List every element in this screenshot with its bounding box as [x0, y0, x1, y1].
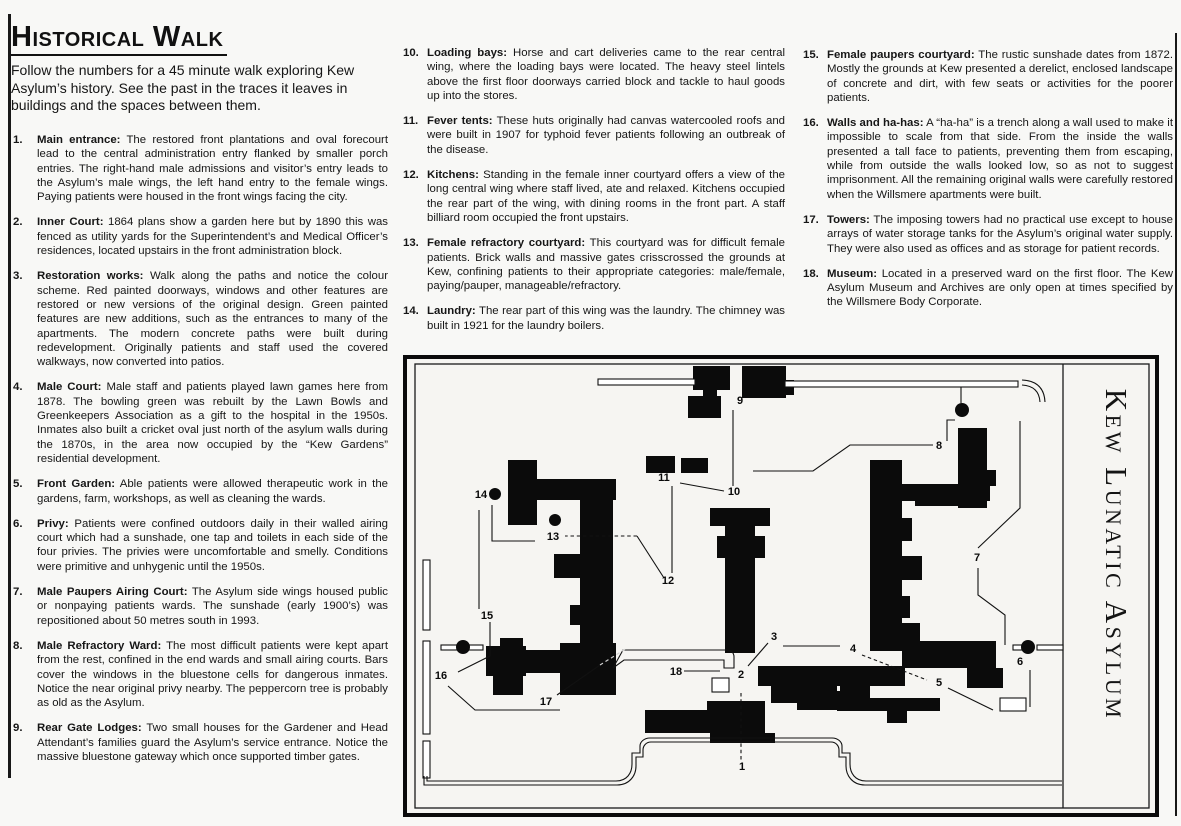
item-heading: Male Refractory Ward:	[37, 640, 161, 652]
item-number: 11.	[403, 114, 418, 128]
walk-items-column-3: 15.Female paupers courtyard: The rustic …	[801, 48, 1173, 321]
intro-paragraph: Follow the numbers for a 45 minute walk …	[11, 62, 389, 115]
walk-item-10: 10.Loading bays: Horse and cart deliveri…	[401, 46, 785, 103]
map-label-13: 13	[547, 531, 559, 543]
item-text: Male staff and patients played lawn game…	[37, 381, 388, 464]
item-text: Patients were confined outdoors daily in…	[37, 518, 388, 573]
item-heading: Front Garden:	[37, 478, 115, 490]
asylum-map: 123456789101112131415161718 Kew Lunatic …	[403, 355, 1161, 821]
item-number: 13.	[403, 236, 419, 250]
walk-item-3: 3.Restoration works: Walk along the path…	[11, 269, 388, 369]
item-number: 12.	[403, 168, 419, 182]
walk-item-14: 14.Laundry: The rear part of this wing w…	[401, 304, 785, 333]
item-heading: Inner Court:	[37, 216, 104, 228]
map-label-17: 17	[540, 696, 552, 708]
walk-item-17: 17.Towers: The imposing towers had no pr…	[801, 213, 1173, 256]
map-label-14: 14	[475, 489, 488, 501]
item-number: 15.	[803, 48, 819, 62]
walk-items-column-1: 1.Main entrance: The restored front plan…	[11, 133, 388, 775]
item-text: The imposing towers had no practical use…	[827, 214, 1173, 255]
map-title: Kew Lunatic Asylum	[1099, 389, 1134, 721]
walk-item-2: 2.Inner Court: 1864 plans show a garden …	[11, 215, 388, 258]
item-heading: Laundry:	[427, 305, 476, 317]
item-heading: Towers:	[827, 214, 870, 226]
item-text: A “ha-ha” is a trench along a wall used …	[827, 117, 1173, 200]
map-label-6: 6	[1017, 656, 1023, 668]
item-number: 10.	[403, 46, 419, 60]
walk-items-column-2: 10.Loading bays: Horse and cart deliveri…	[401, 46, 785, 344]
item-text: The rear part of this wing was the laund…	[427, 305, 785, 331]
item-heading: Male Court:	[37, 381, 101, 393]
item-heading: Female paupers courtyard:	[827, 49, 975, 61]
item-heading: Kitchens:	[427, 169, 479, 181]
item-number: 3.	[13, 269, 23, 283]
walk-item-5: 5.Front Garden: Able patients were allow…	[11, 477, 388, 506]
item-number: 17.	[803, 213, 819, 227]
item-number: 8.	[13, 639, 23, 653]
asylum-map-svg: 123456789101112131415161718 Kew Lunatic …	[403, 355, 1161, 821]
item-number: 14.	[403, 304, 419, 318]
item-text: Walk along the paths and notice the colo…	[37, 270, 388, 368]
walk-item-12: 12.Kitchens: Standing in the female inne…	[401, 168, 785, 225]
item-heading: Female refractory courtyard:	[427, 237, 585, 249]
page-title: Historical Walk	[11, 22, 227, 56]
right-scan-edge	[1175, 33, 1177, 816]
map-label-10: 10	[728, 486, 740, 498]
map-label-2: 2	[738, 669, 744, 681]
item-heading: Rear Gate Lodges:	[37, 722, 142, 734]
item-heading: Privy:	[37, 518, 69, 530]
item-number: 6.	[13, 517, 23, 531]
item-heading: Male Paupers Airing Court:	[37, 586, 188, 598]
walk-item-11: 11.Fever tents: These huts originally ha…	[401, 114, 785, 157]
item-heading: Main entrance:	[37, 134, 120, 146]
walk-item-6: 6.Privy: Patients were confined outdoors…	[11, 517, 388, 574]
map-label-9: 9	[737, 395, 743, 407]
map-label-12: 12	[662, 575, 674, 587]
walk-item-15: 15.Female paupers courtyard: The rustic …	[801, 48, 1173, 105]
map-label-5: 5	[936, 677, 942, 689]
item-number: 2.	[13, 215, 23, 229]
walk-item-9: 9.Rear Gate Lodges: Two small houses for…	[11, 721, 388, 764]
item-number: 9.	[13, 721, 23, 735]
item-heading: Loading bays:	[427, 47, 507, 59]
item-heading: Restoration works:	[37, 270, 143, 282]
walk-item-13: 13.Female refractory courtyard: This cou…	[401, 236, 785, 293]
walk-item-7: 7.Male Paupers Airing Court: The Asylum …	[11, 585, 388, 628]
map-label-16: 16	[435, 670, 447, 682]
item-number: 4.	[13, 380, 23, 394]
item-number: 1.	[13, 133, 23, 147]
item-text: Standing in the female inner courtyard o…	[427, 169, 785, 224]
item-number: 7.	[13, 585, 23, 599]
scanned-brochure-page: Historical Walk Follow the numbers for a…	[0, 0, 1181, 826]
item-number: 5.	[13, 477, 23, 491]
walk-item-4: 4.Male Court: Male staff and patients pl…	[11, 380, 388, 466]
map-label-8: 8	[936, 440, 942, 452]
item-heading: Museum:	[827, 268, 877, 280]
walk-item-16: 16.Walls and ha-has: A “ha-ha” is a tren…	[801, 116, 1173, 202]
map-label-4: 4	[850, 643, 857, 655]
item-text: Located in a preserved ward on the first…	[827, 268, 1173, 309]
map-label-3: 3	[771, 631, 777, 643]
map-label-11: 11	[658, 472, 670, 484]
map-label-1: 1	[739, 761, 745, 773]
walk-item-8: 8.Male Refractory Ward: The most difficu…	[11, 639, 388, 710]
map-label-7: 7	[974, 552, 980, 564]
map-outer-border	[405, 357, 1157, 815]
item-number: 16.	[803, 116, 819, 130]
walk-item-18: 18.Museum: Located in a preserved ward o…	[801, 267, 1173, 310]
map-label-18: 18	[670, 666, 682, 678]
item-heading: Walls and ha-has:	[827, 117, 924, 129]
item-heading: Fever tents:	[427, 115, 493, 127]
item-number: 18.	[803, 267, 819, 281]
map-label-15: 15	[481, 610, 493, 622]
walk-item-1: 1.Main entrance: The restored front plan…	[11, 133, 388, 204]
